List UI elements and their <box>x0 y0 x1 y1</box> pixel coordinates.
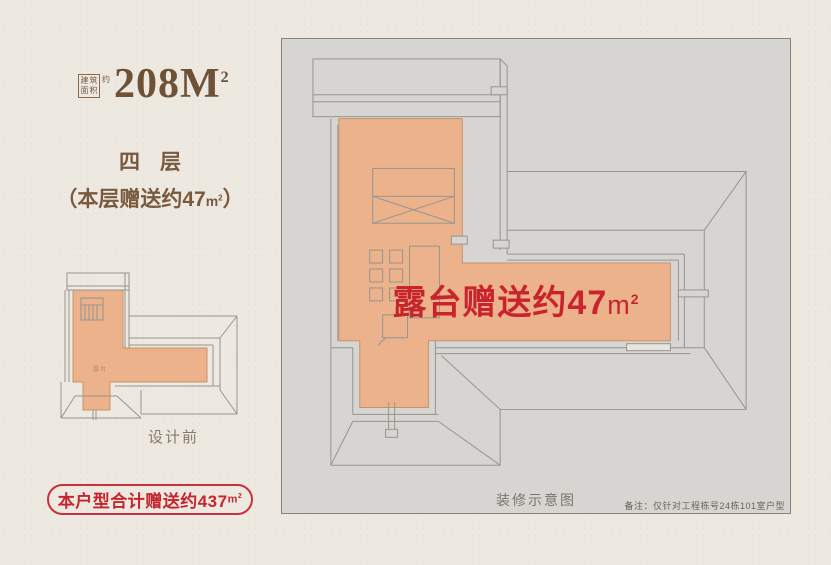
total-gift-badge: 本户型合计赠送约437m2 <box>47 484 253 515</box>
area-char: 积 <box>89 86 98 96</box>
area-label-box: 建 筑 面 积 <box>78 74 100 98</box>
square-superscript: 2 <box>221 69 230 86</box>
terrace-gift-annotation: 露台赠送约47m2 <box>366 275 666 324</box>
mini-terrace-label: 露台 <box>93 364 107 373</box>
floor-gift-line: （本层赠送约47m2） <box>30 183 270 213</box>
mini-plan-caption: 设计前 <box>148 426 199 447</box>
marketing-page: { "colors": { "page_bg": "#EDE9E1", "bro… <box>0 0 831 565</box>
mini-floor-plan: 露台 设计前 <box>55 268 255 453</box>
terrace-shape <box>339 119 671 408</box>
floor-title: 四层 <box>50 146 250 176</box>
plan-caption: 装修示意图 <box>461 490 611 510</box>
area-char: 筑 <box>89 76 98 86</box>
area-number: 208M2 <box>114 64 230 104</box>
sqm-unit: m2 <box>228 493 243 506</box>
sqm-unit: m2 <box>607 290 639 320</box>
decoration-plan-panel: 露台赠送约47m2 装修示意图 备注：仅针对工程栋号24栋101室户型 <box>281 38 791 514</box>
area-approx-char: 约 <box>102 74 110 85</box>
area-char: 建 <box>80 76 89 86</box>
mini-plan-drawing <box>55 268 255 428</box>
area-char: 面 <box>80 86 89 96</box>
plan-note: 备注：仅针对工程栋号24栋101室户型 <box>624 499 785 512</box>
sqm-unit: m2 <box>206 193 223 209</box>
area-title: 建 筑 面 积 约 208M2 <box>78 64 230 104</box>
